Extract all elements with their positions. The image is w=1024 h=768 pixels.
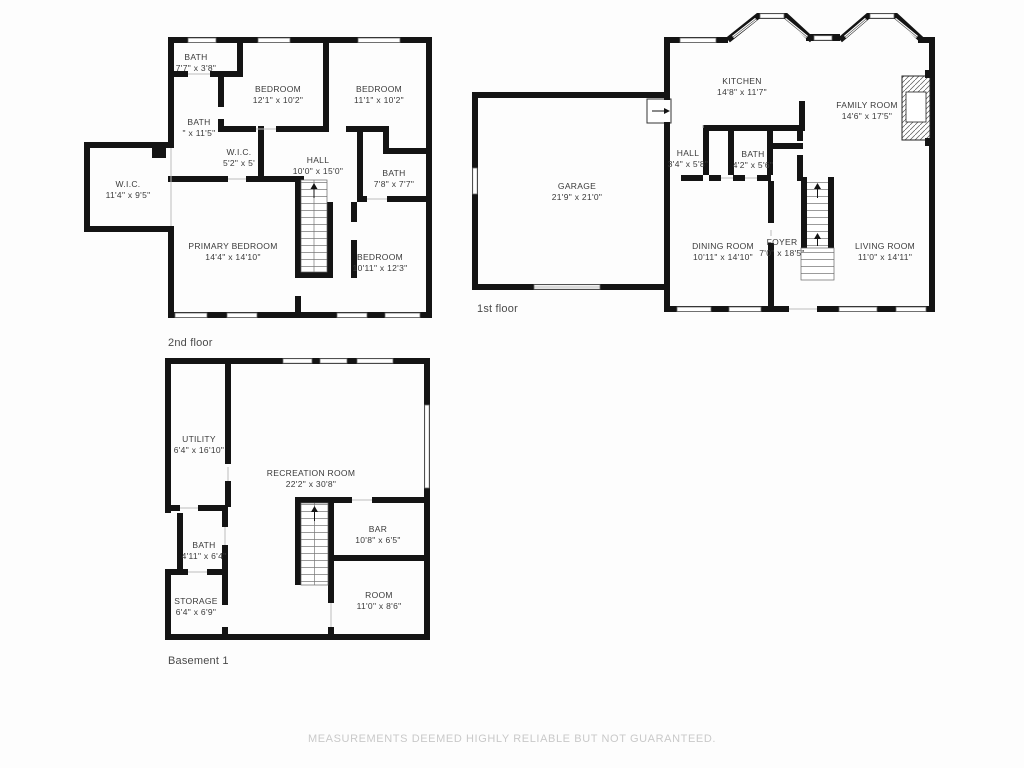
room-label: UTILITY 6'4" x 16'10" <box>174 434 225 456</box>
room-label: KITCHEN 14'8" x 11'7" <box>717 76 767 98</box>
room-label: GARAGE 21'9" x 21'0" <box>552 181 603 203</box>
room-label: ROOM 11'0" x 8'6" <box>357 590 402 612</box>
room-label: BEDROOM 12'1" x 10'2" <box>253 84 304 106</box>
room-label: BEDROOM 10'11" x 12'3" <box>353 252 408 274</box>
room-label: HALL 10'0" x 15'0" <box>293 155 344 177</box>
room-label: STORAGE 6'4" x 6'9" <box>174 596 218 618</box>
bay-window <box>728 14 812 40</box>
room-label: LIVING ROOM 11'0" x 14'11" <box>855 241 915 263</box>
floorplan-sheet: BATH 7'7" x 3'8" BEDROOM 12'1" x 10'2" B… <box>0 0 1024 768</box>
fireplace-icon <box>902 70 935 146</box>
floor-caption-1st: 1st floor <box>477 303 518 315</box>
stairs-icon <box>301 180 327 272</box>
stairs-icon <box>301 503 328 585</box>
room-label: W.I.C. 11'4" x 9'5" <box>106 179 151 201</box>
room-label: RECREATION ROOM 22'2" x 30'8" <box>267 468 355 490</box>
garage-window <box>473 168 478 194</box>
room-label: BATH 4'2" x 5'6" <box>733 149 773 171</box>
room-label: BAR 10'8" x 6'5" <box>355 524 401 546</box>
disclaimer-text: MEASUREMENTS DEEMED HIGHLY RELIABLE BUT … <box>308 733 716 745</box>
room-label: FOYER 7'0" x 18'5" <box>759 237 805 259</box>
room-label: BEDROOM 11'1" x 10'2" <box>354 84 404 106</box>
room-label: W.I.C. 5'2" x 5' <box>223 147 255 169</box>
room-label: PRIMARY BEDROOM 14'4" x 14'10" <box>188 241 277 263</box>
room-label: FAMILY ROOM 14'6" x 17'5" <box>836 100 898 122</box>
room-label: BATH " x 11'5" <box>183 117 216 139</box>
room-label: HALL 3'4" x 5'8" <box>668 148 708 170</box>
room-label: DINING ROOM 10'11" x 14'10" <box>692 241 754 263</box>
room-label: BATH 7'7" x 3'8" <box>176 52 216 74</box>
floor-caption-basement: Basement 1 <box>168 655 229 667</box>
bay-window <box>840 14 922 40</box>
floor-caption-2nd: 2nd floor <box>168 337 213 349</box>
room-label: BATH 4'11" x 6'4" <box>182 540 227 562</box>
front-door-opening <box>789 306 817 312</box>
door-icon <box>647 99 671 123</box>
room-label: BATH 7'8" x 7'7" <box>374 168 414 190</box>
